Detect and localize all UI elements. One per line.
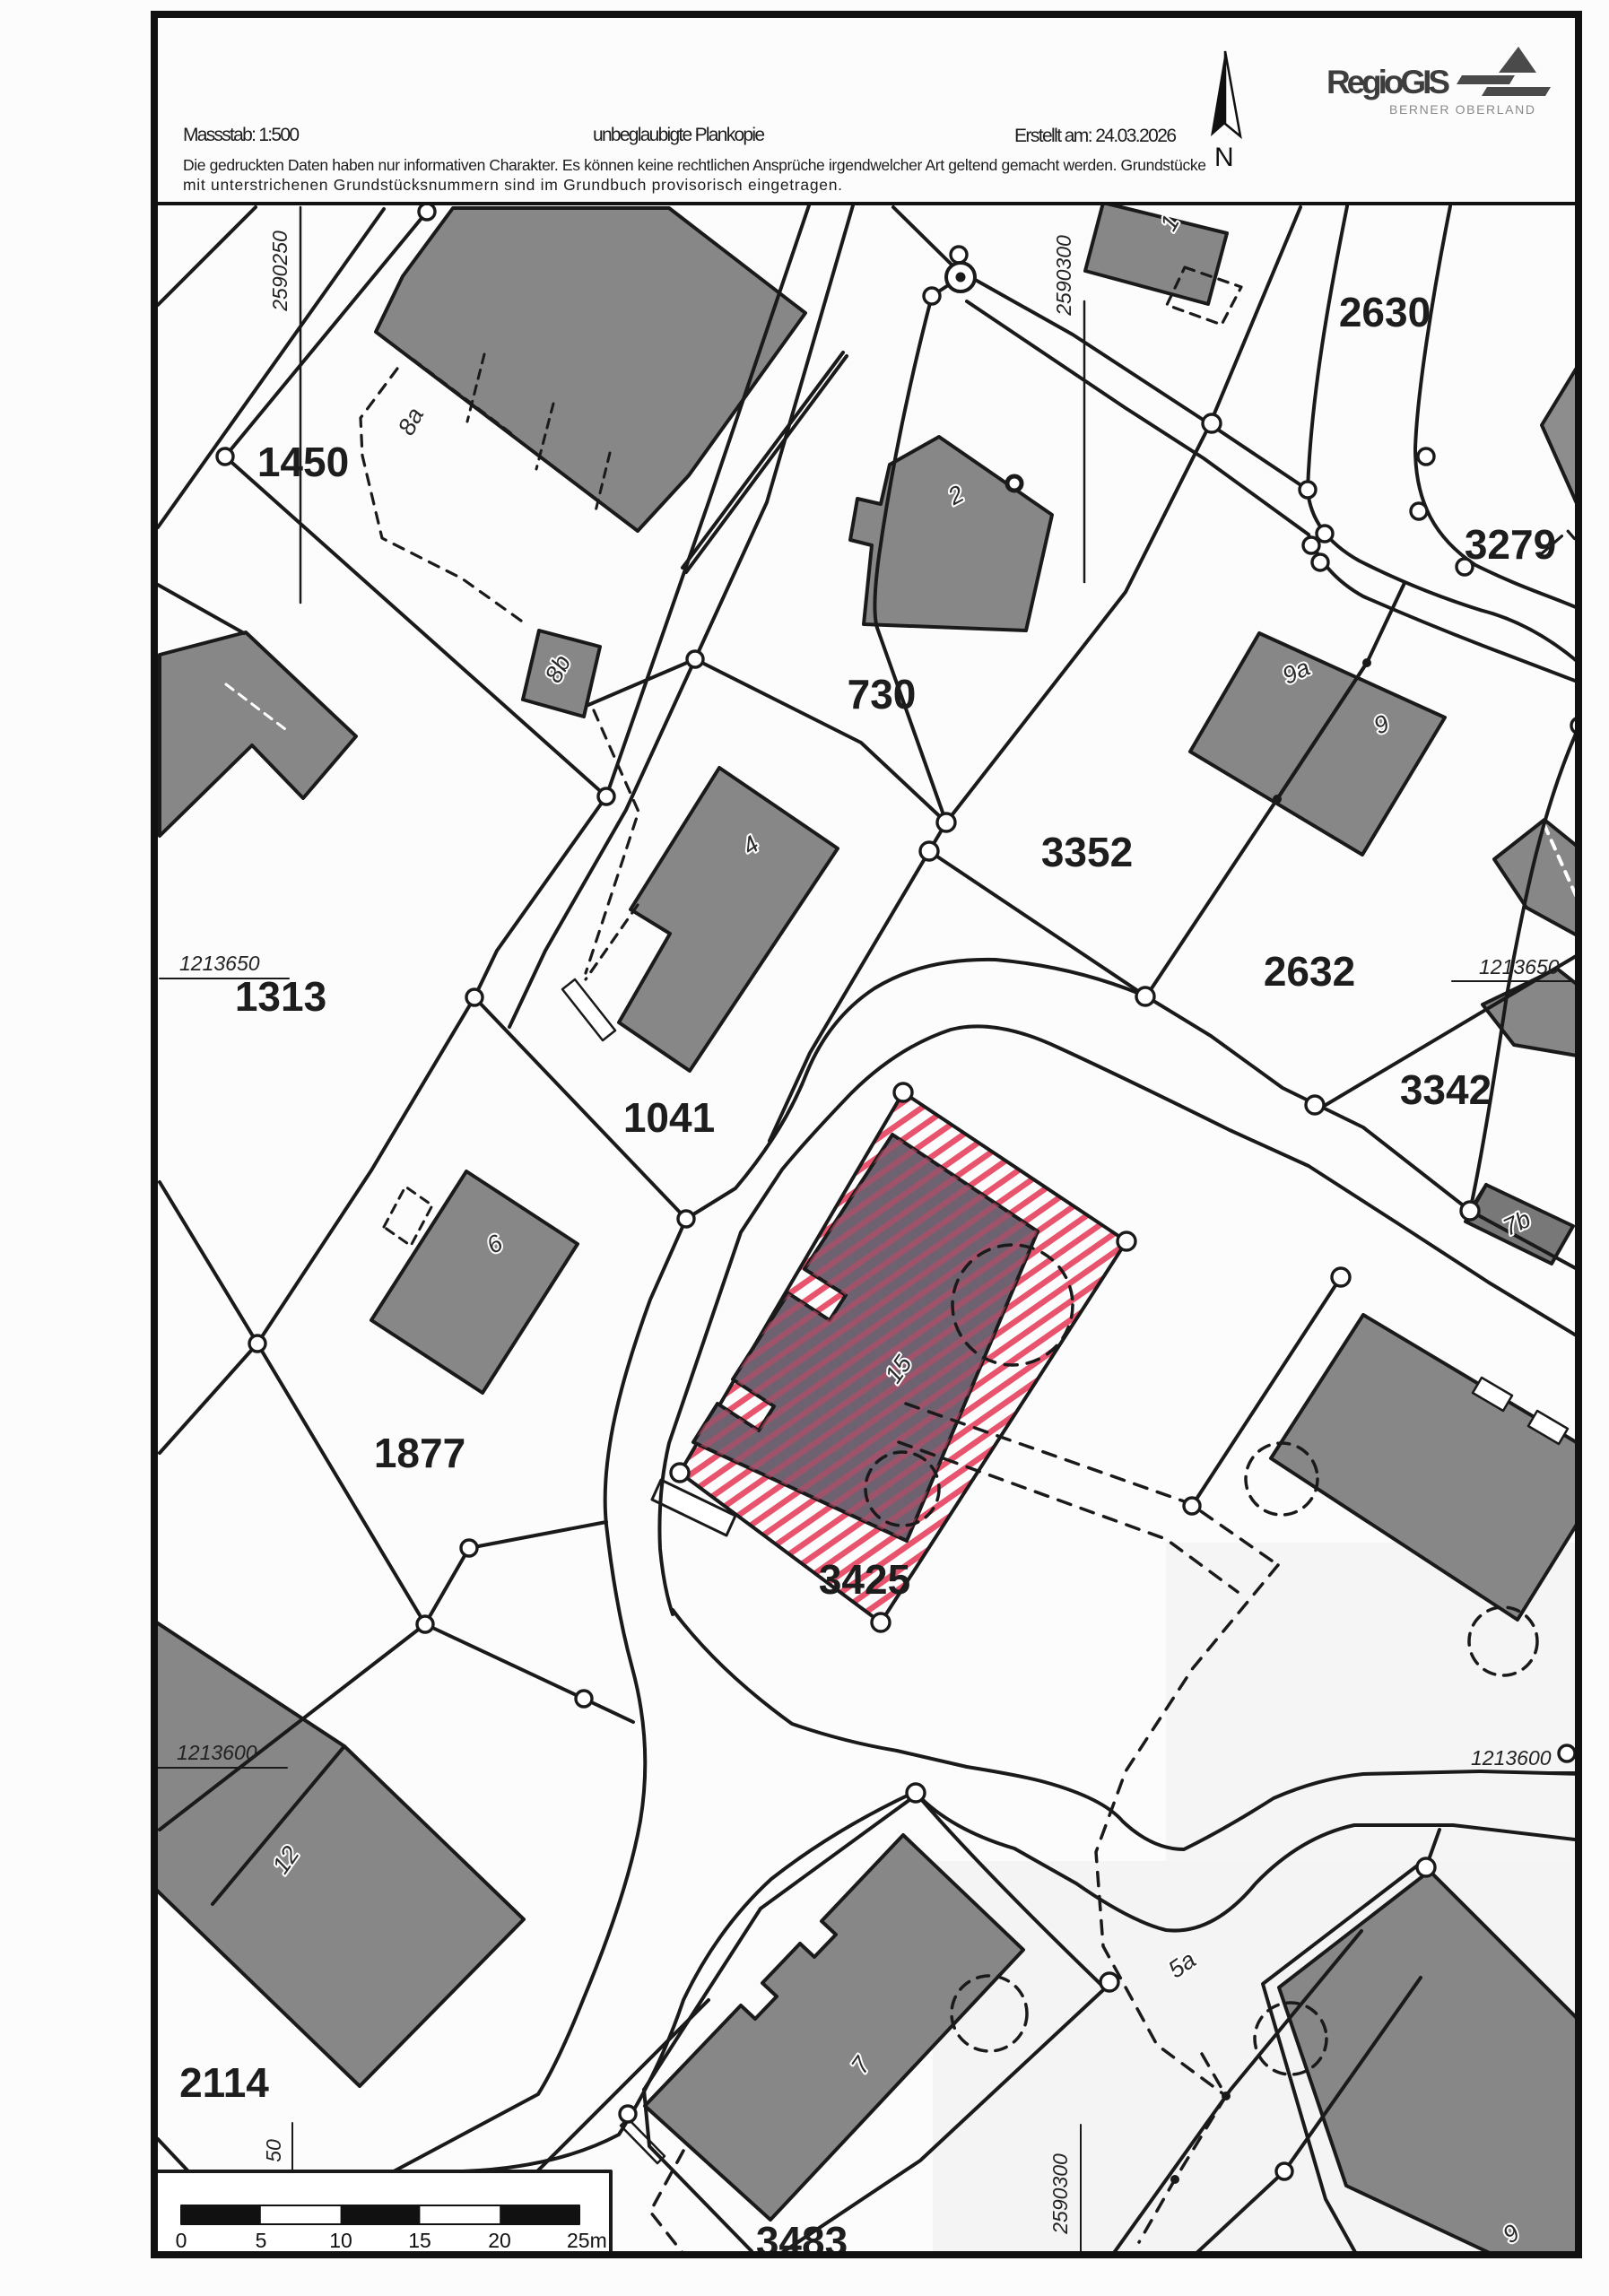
svg-text:3342: 3342 — [1400, 1066, 1492, 1113]
svg-text:1213650: 1213650 — [1479, 955, 1560, 978]
svg-text:20: 20 — [488, 2229, 511, 2252]
svg-text:2114: 2114 — [179, 2059, 269, 2106]
svg-text:3279: 3279 — [1465, 521, 1556, 568]
svg-text:mit unterstrichenen Grundstück: mit unterstrichenen Grundstücksnummern s… — [183, 176, 842, 194]
svg-text:5: 5 — [256, 2229, 267, 2252]
svg-text:10: 10 — [329, 2229, 352, 2252]
svg-text:Die gedruckten Daten haben nur: Die gedruckten Daten haben nur informati… — [183, 156, 1206, 174]
svg-text:2590250: 2590250 — [268, 230, 291, 312]
svg-text:1041: 1041 — [623, 1094, 715, 1141]
svg-text:RegioGIS: RegioGIS — [1326, 64, 1450, 100]
svg-text:1450: 1450 — [257, 439, 349, 485]
svg-text:1213600: 1213600 — [177, 1741, 257, 1764]
svg-text:2590300: 2590300 — [1048, 2153, 1072, 2235]
svg-text:730: 730 — [848, 671, 917, 717]
svg-text:1877: 1877 — [374, 1430, 465, 1476]
svg-text:3425: 3425 — [819, 1556, 910, 1603]
svg-text:1213600: 1213600 — [1471, 1746, 1552, 1770]
svg-text:1313: 1313 — [235, 973, 326, 1020]
svg-text:2632: 2632 — [1264, 948, 1355, 995]
svg-text:25m: 25m — [567, 2229, 607, 2252]
svg-text:50: 50 — [262, 2139, 285, 2162]
svg-text:2630: 2630 — [1339, 289, 1431, 335]
svg-text:2590300: 2590300 — [1052, 235, 1075, 317]
svg-text:1213650: 1213650 — [179, 952, 260, 975]
svg-text:Massstab: 1:500: Massstab: 1:500 — [183, 125, 300, 145]
svg-text:unbeglaubigte Plankopie: unbeglaubigte Plankopie — [593, 125, 765, 145]
svg-text:15: 15 — [408, 2229, 431, 2252]
svg-text:3352: 3352 — [1041, 829, 1133, 875]
svg-text:N: N — [1214, 143, 1234, 172]
svg-text:0: 0 — [176, 2229, 187, 2252]
svg-text:BERNER OBERLAND: BERNER OBERLAND — [1389, 102, 1537, 117]
svg-text:Erstellt am: 24.03.2026: Erstellt am: 24.03.2026 — [1014, 126, 1177, 146]
